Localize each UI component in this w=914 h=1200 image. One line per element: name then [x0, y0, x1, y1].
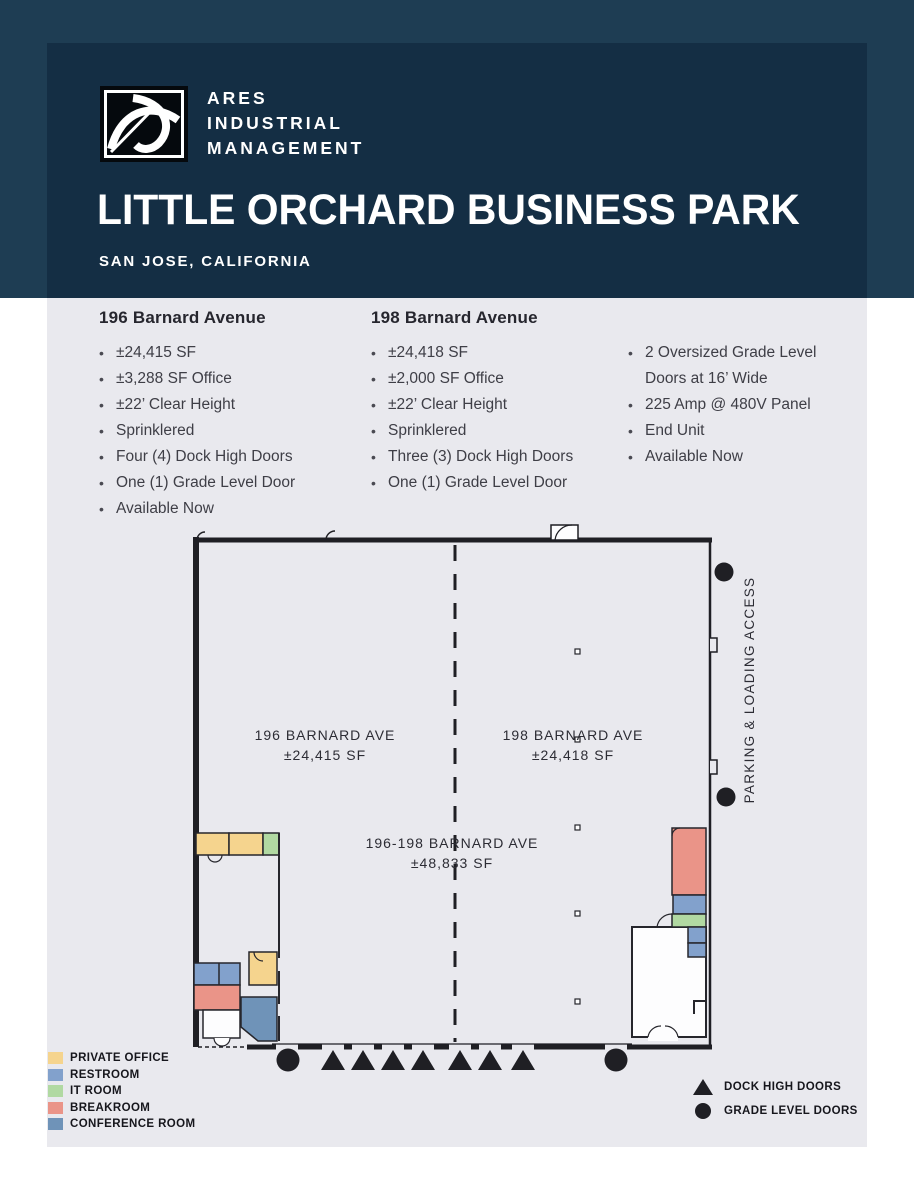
dock-high-door-icons: [321, 1050, 535, 1070]
it-room: [263, 833, 279, 855]
legend-label: IT ROOM: [70, 1085, 122, 1097]
flyer-page: ARES INDUSTRIAL MANAGEMENT LITTLE ORCHAR…: [0, 0, 914, 1200]
legend-label: GRADE LEVEL DOORS: [724, 1105, 858, 1117]
room-legend: PRIVATE OFFICE RESTROOM IT ROOM BREAKROO…: [48, 1052, 195, 1130]
legend-label: BREAKROOM: [70, 1102, 150, 1114]
combined-sf: ±48,833 SF: [411, 855, 493, 871]
conference-room: [241, 997, 277, 1041]
legend-label: PRIVATE OFFICE: [70, 1052, 169, 1064]
legend-label: RESTROOM: [70, 1069, 140, 1081]
column-markers: [575, 649, 580, 1004]
private-office-room: [196, 833, 229, 855]
combined-label: 196-198 BARNARD AVE: [366, 835, 539, 851]
unit-196-label: 196 BARNARD AVE: [255, 727, 396, 743]
unit-196-sf: ±24,415 SF: [284, 747, 366, 763]
conference-room-swatch: [48, 1118, 63, 1130]
grade-level-circle-icon: [695, 1103, 711, 1119]
plan-labels: 196 BARNARD AVE ±24,415 SF 198 BARNARD A…: [255, 727, 644, 871]
private-office-swatch: [48, 1052, 63, 1064]
legend-row: CONFERENCE ROOM: [48, 1118, 195, 1130]
legend-row: RESTROOM: [48, 1069, 195, 1081]
breakroom: [672, 828, 706, 895]
legend-row: PRIVATE OFFICE: [48, 1052, 195, 1064]
dock-high-triangle-icon: [693, 1079, 713, 1095]
floor-plan: 196 BARNARD AVE ±24,415 SF 198 BARNARD A…: [0, 0, 914, 1200]
restroom: [688, 927, 706, 943]
unit-198-sf: ±24,418 SF: [532, 747, 614, 763]
legend-row: DOCK HIGH DOORS: [692, 1078, 858, 1095]
door-legend: DOCK HIGH DOORS GRADE LEVEL DOORS: [692, 1078, 858, 1119]
private-office-room: [249, 952, 277, 985]
unit-198-label: 198 BARNARD AVE: [503, 727, 644, 743]
office-cluster-198: [632, 828, 706, 1041]
restroom: [194, 963, 240, 985]
parking-loading-access-label: PARKING & LOADING ACCESS: [742, 570, 762, 810]
open-office-room: [203, 1010, 240, 1038]
breakroom-swatch: [48, 1102, 63, 1114]
restroom: [688, 943, 706, 957]
restroom: [673, 895, 706, 914]
breakroom: [194, 985, 240, 1010]
restroom-swatch: [48, 1069, 63, 1081]
legend-row: IT ROOM: [48, 1085, 195, 1097]
private-office-room: [229, 833, 263, 855]
legend-row: BREAKROOM: [48, 1102, 195, 1114]
legend-label: DOCK HIGH DOORS: [724, 1081, 841, 1093]
it-room-swatch: [48, 1085, 63, 1097]
legend-row: GRADE LEVEL DOORS: [692, 1102, 858, 1119]
it-room: [672, 914, 706, 927]
office-cluster-196: [194, 833, 281, 1046]
legend-label: CONFERENCE ROOM: [70, 1118, 195, 1130]
